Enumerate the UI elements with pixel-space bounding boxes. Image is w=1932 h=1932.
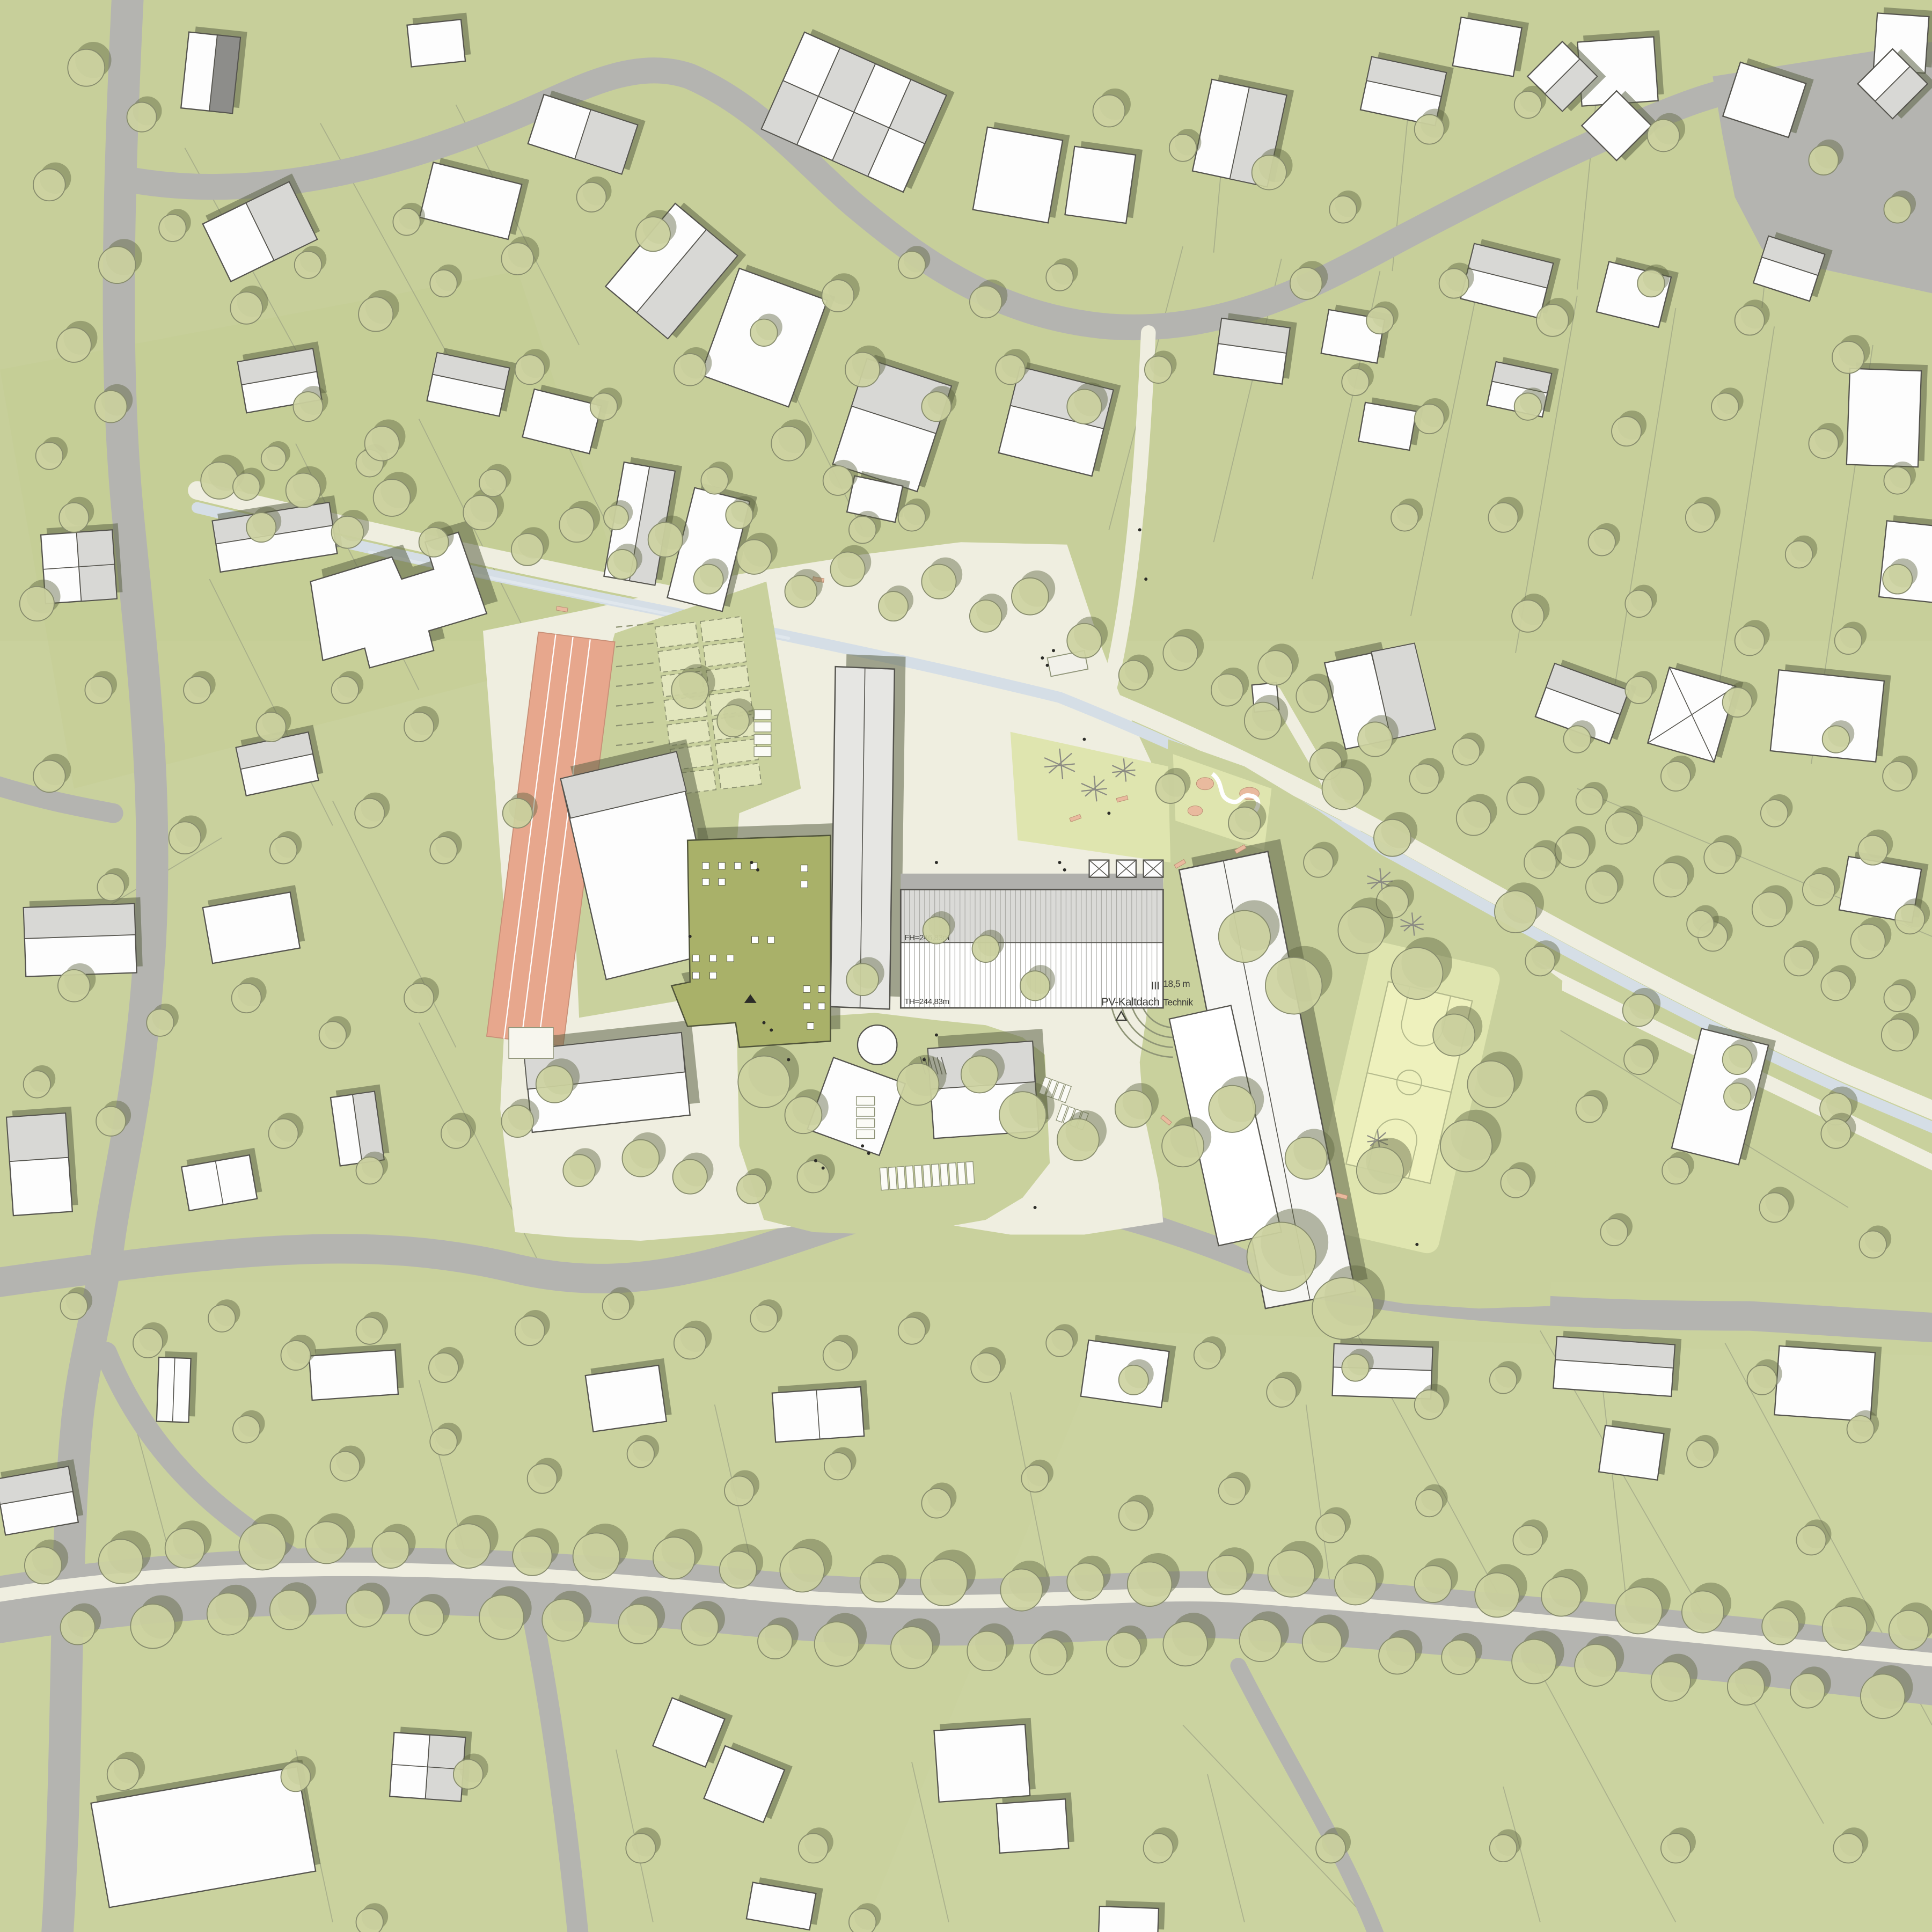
house (406, 13, 471, 67)
house (1847, 362, 1928, 467)
building-round-pavilion (858, 1025, 897, 1064)
roof-type-label: PV-Kaltdach (1101, 996, 1160, 1008)
house (934, 1718, 1036, 1802)
house (1214, 312, 1297, 385)
storeys-label: III (1151, 980, 1160, 992)
house (584, 1358, 672, 1432)
house (973, 121, 1070, 224)
hall-eaves-height-label: TH=244,83m (904, 997, 949, 1006)
house (1774, 1340, 1882, 1422)
site-plan-canvas: FH=246,83m TH=244,83m III PV-Kaltdach 18… (0, 0, 1932, 1932)
house (6, 1107, 78, 1216)
hall-skylights (1089, 860, 1163, 877)
house (157, 1351, 197, 1423)
gym-yard (509, 1028, 553, 1058)
building-height-label: 18,5 m (1163, 978, 1190, 989)
house (309, 1343, 404, 1400)
house (772, 1380, 870, 1442)
house (1599, 1419, 1671, 1481)
house (1453, 11, 1529, 78)
site-plan-svg: FH=246,83m TH=244,83m III PV-Kaltdach 18… (0, 0, 1932, 1932)
house (181, 26, 247, 114)
house (1553, 1330, 1681, 1397)
technik-label: Technik (1163, 997, 1193, 1007)
house (1065, 140, 1143, 224)
house (996, 1792, 1075, 1853)
house (1099, 1900, 1165, 1932)
house (0, 1459, 84, 1535)
